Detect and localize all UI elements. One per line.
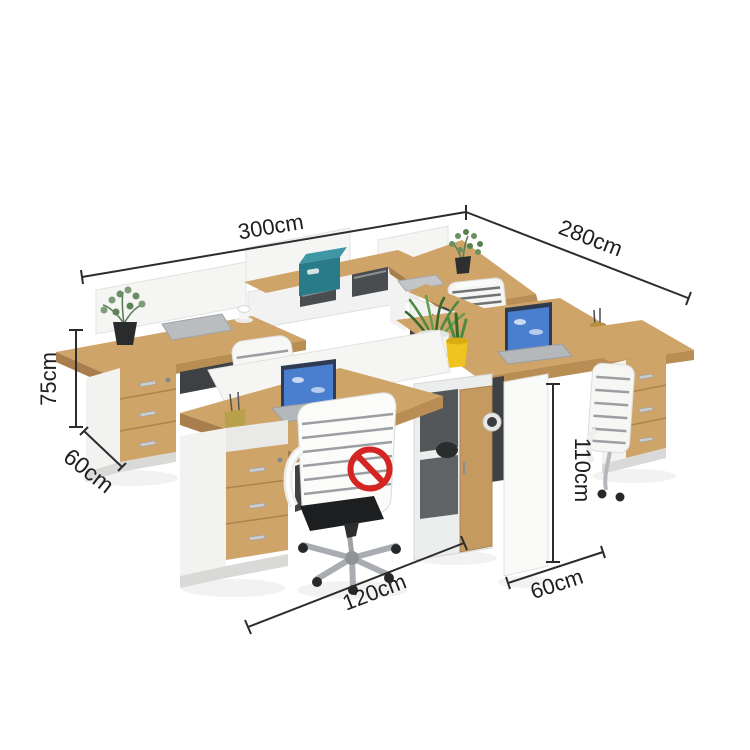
dimension-label-single-desk-width: 120cm [339, 568, 410, 615]
workstation-illustration: 300cm 280cm 75cm 60cm 110cm [0, 0, 750, 750]
dimension-panel-height: 110cm [546, 384, 595, 562]
dimension-label-overall-depth: 280cm [555, 214, 626, 261]
dimension-label-panel-height: 110cm [570, 438, 595, 502]
front-chair [288, 393, 401, 595]
dimension-label-side-desk-depth: 60cm [527, 564, 586, 604]
end-panel-110cm [504, 374, 548, 576]
round-speaker [483, 413, 501, 431]
dimension-desk-height: 75cm [36, 330, 83, 427]
product-dimension-image: 300cm 280cm 75cm 60cm 110cm [0, 0, 750, 750]
center-pedestal [180, 420, 288, 588]
camera-object [436, 442, 458, 458]
yellow-pot-plant [446, 314, 468, 368]
storage-box [299, 247, 347, 296]
dimension-label-desk-height: 75cm [36, 352, 61, 406]
